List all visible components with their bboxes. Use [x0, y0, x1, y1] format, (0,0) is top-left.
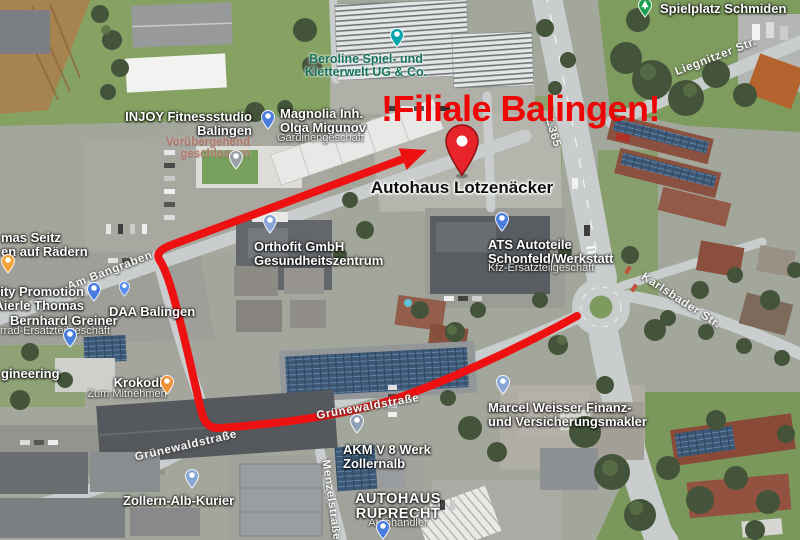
ats-marker-icon[interactable] — [494, 212, 510, 237]
destination-label: Autohaus Lotzenäcker — [371, 178, 553, 198]
ruprecht-marker-icon[interactable] — [375, 520, 391, 540]
orthofit-marker-icon[interactable] — [262, 214, 278, 239]
krokodil-marker-icon[interactable] — [159, 375, 175, 400]
map-canvas[interactable]: Spielplatz SchmidenLiegnitzer Str.Beroli… — [0, 0, 800, 540]
injoy-marker-icon[interactable] — [228, 150, 244, 175]
zollern-marker-icon[interactable] — [184, 469, 200, 494]
spielplatz-marker-icon[interactable] — [637, 0, 653, 23]
akm-marker-icon[interactable] — [349, 414, 365, 439]
greiner-marker-icon[interactable] — [62, 328, 78, 353]
beroline-marker-icon[interactable] — [389, 28, 405, 53]
city-promotion-marker-icon[interactable] — [86, 282, 102, 307]
annotation-title: !Filiale Balingen! — [381, 88, 660, 130]
magnolia-marker-icon[interactable] — [260, 110, 276, 135]
seitz-marker-icon[interactable] — [0, 254, 16, 279]
marcel-marker-icon[interactable] — [495, 375, 511, 400]
daa-marker-icon[interactable] — [118, 281, 131, 302]
satellite-map — [0, 0, 800, 540]
